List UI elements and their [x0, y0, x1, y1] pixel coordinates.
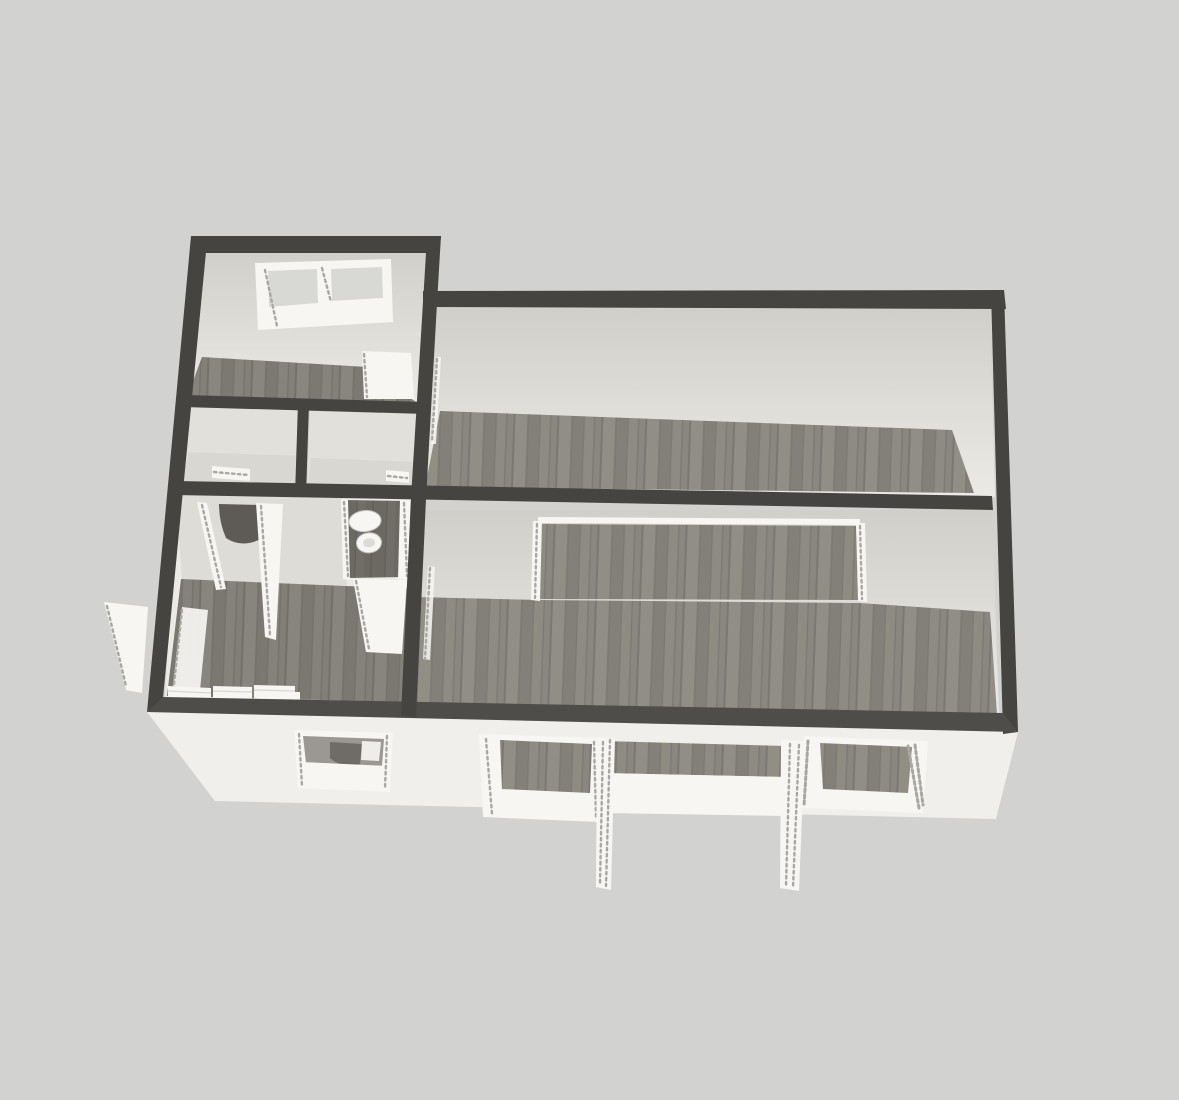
- bedroom-north-window: [255, 259, 393, 330]
- window-pane: [331, 267, 383, 301]
- living-room-floor: [404, 597, 997, 714]
- living-south-window-right: [801, 736, 928, 813]
- living-south-window-left: [479, 734, 602, 822]
- wall-opening-floor: [539, 524, 859, 600]
- window-pane: [268, 269, 318, 307]
- hall-south-window: [294, 730, 393, 792]
- bedroom-open-door-panel: [362, 351, 414, 399]
- wall-north-bedroom: [191, 236, 441, 253]
- floorplan-3d-render: [0, 0, 1179, 1100]
- floorplan-3d-viewport[interactable]: [0, 0, 1179, 1100]
- wall-north-main: [423, 290, 1006, 309]
